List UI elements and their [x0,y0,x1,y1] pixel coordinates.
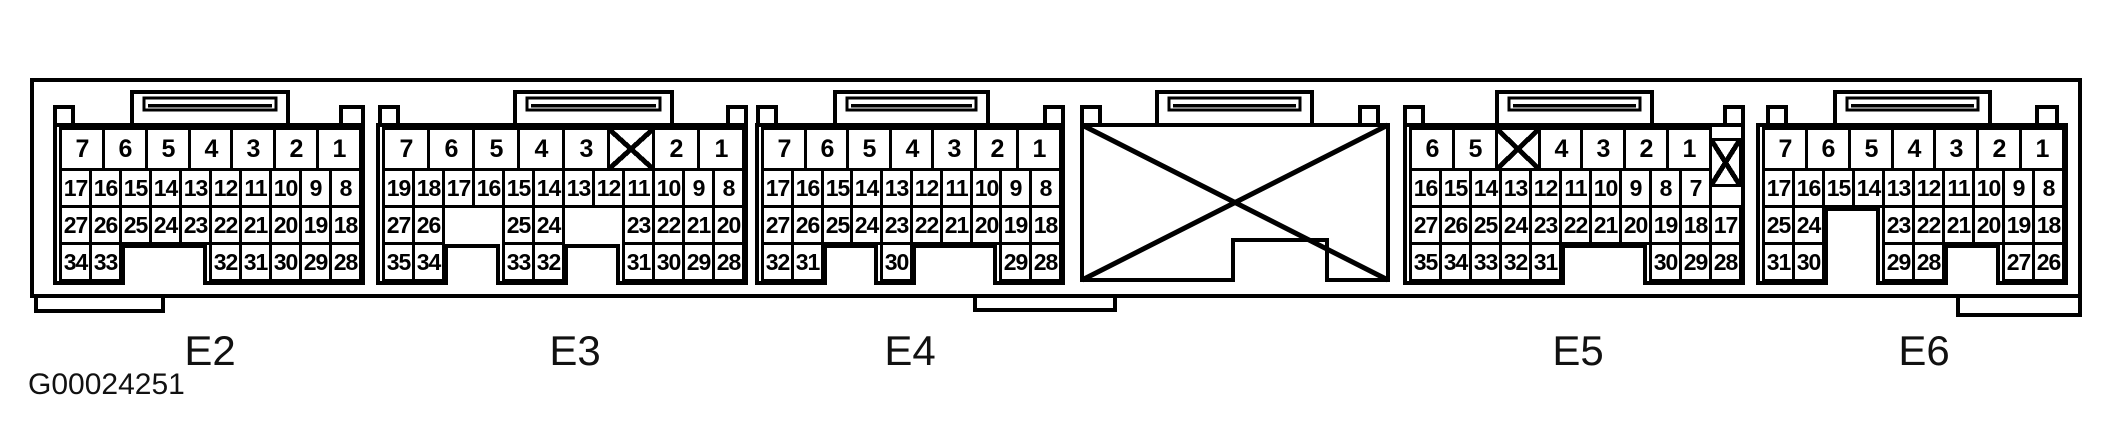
pin-e2-1: 1 [316,127,362,171]
pin-e2-21: 21 [239,205,272,245]
pin-e5-24: 24 [1499,205,1532,245]
pin-e3-12: 12 [592,168,625,208]
pin-e2-12: 12 [209,168,242,208]
pin-e3-10: 10 [652,168,685,208]
pin-e4-30: 30 [880,242,913,282]
connector-label-e5: E5 [1518,327,1638,375]
pin-e6-17: 17 [1762,168,1795,208]
pin-e6-29: 29 [1882,242,1915,282]
pin-e3-7: 7 [382,127,430,171]
pin-e5-7: 7 [1679,168,1712,208]
pin-e5-27: 27 [1409,205,1442,245]
pin-e4-27: 27 [761,205,794,245]
pin-e2-23: 23 [179,205,212,245]
pin-e6-10: 10 [1972,168,2005,208]
pin-e6-12: 12 [1912,168,1945,208]
pin-e4-13: 13 [880,168,913,208]
pin-e6-28: 28 [1912,242,1945,282]
pin-e3-8: 8 [712,168,745,208]
pin-e3-13: 13 [562,168,595,208]
pin-e5-33: 33 [1469,242,1502,282]
connector-label-e6: E6 [1864,327,1984,375]
pin-e4-14: 14 [850,168,883,208]
pin-e5-30: 30 [1649,242,1682,282]
pin-e5-13: 13 [1499,168,1532,208]
pin-e4-7: 7 [761,127,807,171]
pin-e4-21: 21 [940,205,973,245]
pin-e3-35: 35 [382,242,415,282]
pin-e3-1: 1 [697,127,745,171]
pin-e2-16: 16 [89,168,122,208]
pin-e4-23: 23 [880,205,913,245]
pin-e5-18: 18 [1679,205,1712,245]
latch-stripe-line-e6 [1851,104,1974,108]
pin-e2-4: 4 [188,127,234,171]
pin-e5-28: 28 [1709,242,1742,282]
pin-e2-11: 11 [239,168,272,208]
pin-e5-3: 3 [1580,127,1626,171]
pin-e4-22: 22 [910,205,943,245]
pin-e6-19: 19 [2002,205,2035,245]
pin-e3-27: 27 [382,205,415,245]
pin-e6-1: 1 [2019,127,2065,171]
pin-e3-5: 5 [472,127,520,171]
pin-e2-22: 22 [209,205,242,245]
pin-e5-6: 6 [1409,127,1455,171]
pin-e2-14: 14 [149,168,182,208]
pin-e2-2: 2 [273,127,319,171]
pin-e5-23: 23 [1529,205,1562,245]
pin-e3-25: 25 [502,205,535,245]
pin-e4-9: 9 [999,168,1032,208]
pin-e6-18: 18 [2032,205,2065,245]
pin-e2-3: 3 [230,127,276,171]
connector-label-e4: E4 [850,327,970,375]
pin-e5-8: 8 [1649,168,1682,208]
pin-e5-2: 2 [1623,127,1669,171]
pin-e2-20: 20 [269,205,302,245]
pin-e6-20: 20 [1972,205,2005,245]
pin-e6-13: 13 [1882,168,1915,208]
pin-e2-25: 25 [119,205,152,245]
pin-e6-9: 9 [2002,168,2035,208]
pin-e5-1: 1 [1666,127,1712,171]
pin-e3-14: 14 [532,168,565,208]
pin-e6-22: 22 [1912,205,1945,245]
pin-e6-11: 11 [1942,168,1975,208]
pin-e5-19: 19 [1649,205,1682,245]
pin-e5-17: 17 [1709,205,1742,245]
pin-e6-16: 16 [1792,168,1825,208]
pin-e3-21: 21 [682,205,715,245]
pin-e2-15: 15 [119,168,152,208]
pin-e6-23: 23 [1882,205,1915,245]
pin-e4-8: 8 [1029,168,1062,208]
pin-e3-18: 18 [412,168,445,208]
pin-e3-16: 16 [472,168,505,208]
latch-stripe-line-unused [1173,104,1296,108]
pin-e3-29: 29 [682,242,715,282]
pin-e4-1: 1 [1016,127,1062,171]
pin-e4-2: 2 [974,127,1020,171]
pin-e5-32: 32 [1499,242,1532,282]
pin-e4-26: 26 [791,205,824,245]
pin-e6-14: 14 [1852,168,1885,208]
pin-e5-34: 34 [1439,242,1472,282]
pin-e6-5: 5 [1848,127,1894,171]
pin-e2-6: 6 [102,127,148,171]
pin-e3-17: 17 [442,168,475,208]
pin-e4-3: 3 [931,127,977,171]
pin-e4-6: 6 [804,127,850,171]
pin-e2-26: 26 [89,205,122,245]
pin-e2-9: 9 [299,168,332,208]
pin-e3-9: 9 [682,168,715,208]
pin-e3-20: 20 [712,205,745,245]
pin-e5-26: 26 [1439,205,1472,245]
pin-e3-19: 19 [382,168,415,208]
pin-e2-29: 29 [299,242,332,282]
pin-e3-22: 22 [652,205,685,245]
pin-e2-34: 34 [59,242,92,282]
pin-e2-33: 33 [89,242,122,282]
pin-e2-17: 17 [59,168,92,208]
pin-e3-31: 31 [622,242,655,282]
pin-e5-29: 29 [1679,242,1712,282]
pin-e5-25: 25 [1469,205,1502,245]
pin-e5-20: 20 [1619,205,1652,245]
pin-e4-11: 11 [940,168,973,208]
pin-e6-31: 31 [1762,242,1795,282]
pin-e5-10: 10 [1589,168,1622,208]
pin-e4-19: 19 [999,205,1032,245]
pin-e3-30: 30 [652,242,685,282]
pin-e5-35: 35 [1409,242,1442,282]
pin-e2-19: 19 [299,205,332,245]
pin-e6-2: 2 [1976,127,2022,171]
pin-e3-4: 4 [517,127,565,171]
pin-e6-24: 24 [1792,205,1825,245]
mounting-tab-2 [975,296,1115,310]
pin-e6-27: 27 [2002,242,2035,282]
pin-e3-11: 11 [622,168,655,208]
pin-e5-12: 12 [1529,168,1562,208]
pin-e3-23: 23 [622,205,655,245]
pin-e6-4: 4 [1891,127,1937,171]
pin-e6-25: 25 [1762,205,1795,245]
pin-e5-4: 4 [1538,127,1584,171]
figure-code: G00024251 [28,368,185,402]
pin-e3-26: 26 [412,205,445,245]
pin-e5-31: 31 [1529,242,1562,282]
pin-e2-8: 8 [329,168,362,208]
pin-e3-32: 32 [532,242,565,282]
pin-e4-31: 31 [791,242,824,282]
pin-e2-5: 5 [145,127,191,171]
pin-e6-6: 6 [1805,127,1851,171]
pin-e2-28: 28 [329,242,362,282]
pin-e5-21: 21 [1589,205,1622,245]
pin-e2-24: 24 [149,205,182,245]
crossed-pin-cell [607,127,655,171]
pin-e5-9: 9 [1619,168,1652,208]
pin-e2-27: 27 [59,205,92,245]
pin-e4-28: 28 [1029,242,1062,282]
crossed-pin-cell [1495,127,1541,171]
pin-e5-5: 5 [1452,127,1498,171]
pin-e4-32: 32 [761,242,794,282]
pin-e2-7: 7 [59,127,105,171]
pin-e6-8: 8 [2032,168,2065,208]
pin-e4-17: 17 [761,168,794,208]
pin-e6-3: 3 [1933,127,1979,171]
pin-e5-22: 22 [1559,205,1592,245]
pin-e5-14: 14 [1469,168,1502,208]
pin-e4-16: 16 [791,168,824,208]
pin-e6-7: 7 [1762,127,1808,171]
pin-e3-2: 2 [652,127,700,171]
pin-e3-33: 33 [502,242,535,282]
pin-e6-30: 30 [1792,242,1825,282]
pin-e4-5: 5 [846,127,892,171]
mounting-tab-1 [36,296,163,311]
connector-pinout-diagram: 7654321171615141312111098272625242322212… [0,0,2121,444]
pin-e2-30: 30 [269,242,302,282]
mounting-tab-3 [1958,296,2080,315]
pin-e4-18: 18 [1029,205,1062,245]
pin-e3-28: 28 [712,242,745,282]
pin-e5-15: 15 [1439,168,1472,208]
pin-e3-6: 6 [427,127,475,171]
pin-e3-24: 24 [532,205,565,245]
pin-e6-21: 21 [1942,205,1975,245]
latch-stripe-line-e5 [1513,104,1636,108]
crossed-pin-cell [1709,138,1742,187]
latch-stripe-line-e2 [148,104,272,108]
pin-e3-34: 34 [412,242,445,282]
pin-e5-11: 11 [1559,168,1592,208]
pin-e2-31: 31 [239,242,272,282]
pin-e3-15: 15 [502,168,535,208]
pin-e2-32: 32 [209,242,242,282]
latch-stripe-line-e4 [851,104,972,108]
pin-e6-15: 15 [1822,168,1855,208]
connector-label-e3: E3 [515,327,635,375]
pin-e2-13: 13 [179,168,212,208]
pin-e3-3: 3 [562,127,610,171]
pin-e5-16: 16 [1409,168,1442,208]
pin-e6-26: 26 [2032,242,2065,282]
pin-e2-10: 10 [269,168,302,208]
pin-e2-18: 18 [329,205,362,245]
pin-e4-29: 29 [999,242,1032,282]
pin-e4-12: 12 [910,168,943,208]
pin-e4-4: 4 [889,127,935,171]
pin-e4-24: 24 [850,205,883,245]
latch-stripe-line-e3 [531,104,656,108]
